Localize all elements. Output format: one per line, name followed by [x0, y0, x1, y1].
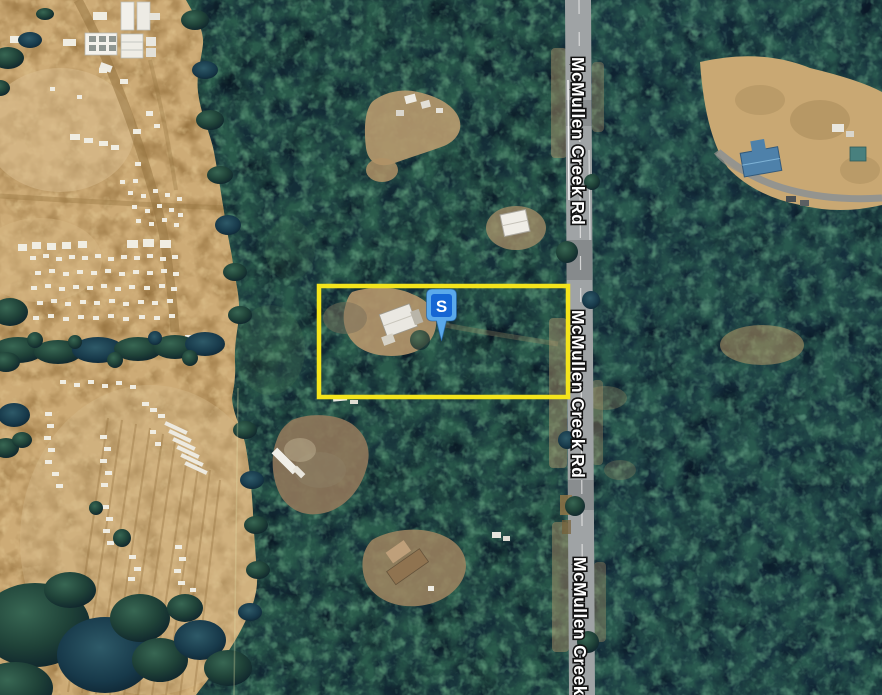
teal-roof-shed — [850, 147, 866, 161]
road-label-1: McMullen Creek Rd — [568, 57, 588, 225]
road-labels: McMullen Creek Rd McMullen Creek Rd McMu… — [568, 57, 590, 695]
marker-letter: S — [436, 297, 447, 316]
map-canvas: McMullen Creek Rd McMullen Creek Rd McMu… — [0, 0, 882, 695]
clearing-small-house — [486, 206, 546, 250]
road-label-2: McMullen Creek Rd — [568, 310, 588, 478]
road-label-3: McMullen Creek Rd — [570, 557, 590, 695]
satellite-map[interactable]: McMullen Creek Rd McMullen Creek Rd McMu… — [0, 0, 882, 695]
